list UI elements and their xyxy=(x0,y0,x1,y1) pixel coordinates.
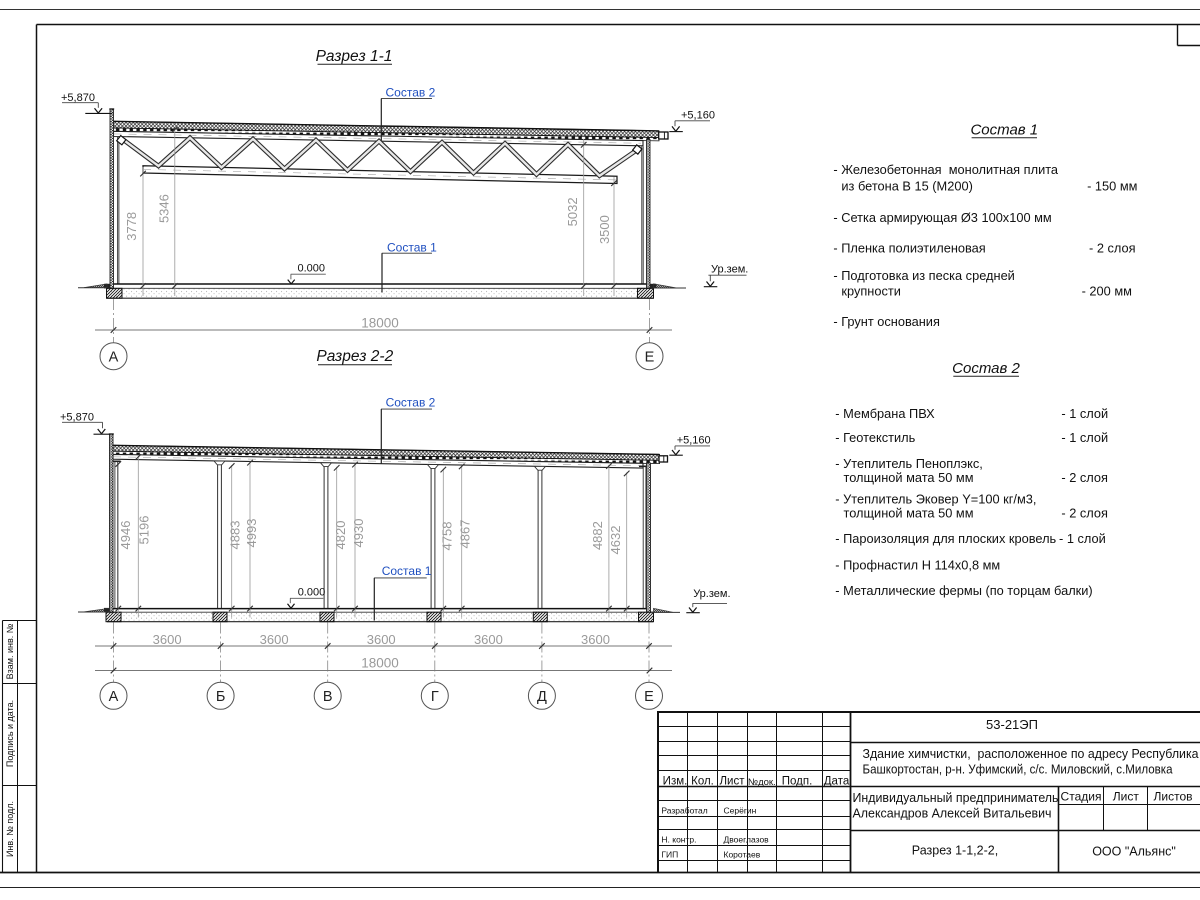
svg-text:Индивидуальный предприниматель: Индивидуальный предприниматель xyxy=(853,791,1059,805)
svg-text:Ур.зем.: Ур.зем. xyxy=(693,588,730,600)
svg-text:ГИП: ГИП xyxy=(661,850,678,860)
svg-text:Александров Алексей Витальевич: Александров Алексей Витальевич xyxy=(853,806,1052,820)
svg-text:4993: 4993 xyxy=(244,519,259,548)
svg-text:- 2 слоя: - 2 слоя xyxy=(1061,470,1108,485)
svg-text:4882: 4882 xyxy=(590,521,605,550)
svg-text:Коротаев: Коротаев xyxy=(724,850,761,860)
svg-text:5196: 5196 xyxy=(136,516,151,545)
svg-text:Разработал: Разработал xyxy=(661,806,707,816)
svg-text:- Профнастил Н 114х0,8 мм: - Профнастил Н 114х0,8 мм xyxy=(835,557,1000,572)
svg-text:Д: Д xyxy=(537,689,547,705)
svg-text:Здание химчистки, расположенн: Здание химчистки, расположенное по адрес… xyxy=(863,746,1200,761)
svg-text:0.000: 0.000 xyxy=(298,263,326,275)
svg-text:- Геотекстиль: - Геотекстиль xyxy=(835,430,915,445)
svg-text:- Утеплитель Пеноплэкс,: - Утеплитель Пеноплэкс, xyxy=(835,456,983,471)
svg-text:3500: 3500 xyxy=(597,215,612,244)
svg-text:Инв. № подл.: Инв. № подл. xyxy=(5,801,15,857)
svg-text:- 1 слой: - 1 слой xyxy=(1059,531,1106,546)
svg-text:0.000: 0.000 xyxy=(298,586,326,598)
svg-text:- Пароизоляция для плоских кро: - Пароизоляция для плоских кровель xyxy=(835,531,1056,546)
svg-text:Г: Г xyxy=(431,689,439,705)
svg-text:Листов: Листов xyxy=(1154,790,1193,804)
svg-text:А: А xyxy=(109,689,119,705)
svg-text:Н. контр.: Н. контр. xyxy=(661,835,696,845)
svg-text:Подп.: Подп. xyxy=(782,775,813,787)
svg-text:Изм.: Изм. xyxy=(663,775,688,787)
svg-text:Состав 1: Состав 1 xyxy=(387,240,437,254)
svg-text:Разрез 1-1,2-2,: Разрез 1-1,2-2, xyxy=(912,844,998,858)
svg-text:4930: 4930 xyxy=(351,519,366,548)
svg-text:- Железобетонная монолитная п: - Железобетонная монолитная плита xyxy=(833,162,1059,177)
svg-text:ООО "Альянс": ООО "Альянс" xyxy=(1092,845,1176,859)
svg-text:Двоеглазов: Двоеглазов xyxy=(724,835,770,845)
svg-text:- Пленка полиэтиленовая: - Пленка полиэтиленовая xyxy=(833,241,985,256)
svg-text:Состав 2: Состав 2 xyxy=(386,396,436,410)
svg-text:- Грунт основания: - Грунт основания xyxy=(833,314,940,329)
svg-text:Серёгин: Серёгин xyxy=(724,806,757,816)
svg-text:4867: 4867 xyxy=(457,520,472,549)
svg-text:3600: 3600 xyxy=(367,632,396,647)
svg-text:3600: 3600 xyxy=(474,632,503,647)
svg-text:Стадия: Стадия xyxy=(1061,790,1102,804)
svg-text:+5,870: +5,870 xyxy=(61,92,95,104)
svg-text:+5,160: +5,160 xyxy=(681,110,715,122)
svg-text:4820: 4820 xyxy=(333,521,348,550)
svg-text:Е: Е xyxy=(644,689,654,705)
svg-text:- 150 мм: - 150 мм xyxy=(1087,179,1137,194)
svg-text:крупности: крупности xyxy=(841,284,901,299)
svg-text:Разрез 2-2: Разрез 2-2 xyxy=(316,348,393,365)
svg-text:Лист: Лист xyxy=(1113,790,1140,804)
svg-text:Состав 1: Состав 1 xyxy=(970,122,1038,139)
svg-text:+5,160: +5,160 xyxy=(677,434,711,446)
svg-text:- 2 слоя: - 2 слоя xyxy=(1061,506,1108,521)
svg-text:4883: 4883 xyxy=(227,521,242,550)
svg-text:Башкортостан, р-н. Уфимский, с: Башкортостан, р-н. Уфимский, с/с. Миловс… xyxy=(863,761,1174,776)
svg-text:3600: 3600 xyxy=(260,632,289,647)
svg-text:из бетона В 15 (М200): из бетона В 15 (М200) xyxy=(841,179,972,194)
svg-text:- 1 слой: - 1 слой xyxy=(1061,430,1108,445)
svg-text:Состав 2: Состав 2 xyxy=(386,86,436,100)
svg-text:Взам. инв. №: Взам. инв. № xyxy=(5,623,15,679)
svg-text:3600: 3600 xyxy=(153,632,182,647)
svg-text:- 1 слой: - 1 слой xyxy=(1061,406,1108,421)
svg-text:5346: 5346 xyxy=(157,194,172,223)
svg-text:4946: 4946 xyxy=(118,521,133,550)
svg-text:Лист: Лист xyxy=(720,775,746,787)
svg-text:- Сетка армирующая Ø3 100х100: - Сетка армирующая Ø3 100х100 мм xyxy=(833,210,1051,225)
svg-text:4758: 4758 xyxy=(440,522,455,551)
svg-text:Состав 2: Состав 2 xyxy=(952,360,1020,377)
svg-text:Подпись и дата.: Подпись и дата. xyxy=(5,700,15,767)
svg-text:18000: 18000 xyxy=(361,656,399,671)
svg-text:- Подготовка из песка средней: - Подготовка из песка средней xyxy=(833,268,1014,283)
svg-text:+5,870: +5,870 xyxy=(60,411,94,423)
svg-text:В: В xyxy=(323,689,333,705)
svg-text:4632: 4632 xyxy=(608,526,623,555)
svg-text:толщиной мата 50 мм: толщиной мата 50 мм xyxy=(844,506,974,521)
svg-text:- 200 мм: - 200 мм xyxy=(1082,284,1132,299)
svg-text:Е: Е xyxy=(645,349,655,365)
svg-text:Разрез 1-1: Разрез 1-1 xyxy=(316,48,393,65)
svg-text:- Мембрана ПВХ: - Мембрана ПВХ xyxy=(835,406,935,421)
svg-text:3778: 3778 xyxy=(124,212,139,241)
svg-text:№док.: №док. xyxy=(748,777,776,788)
svg-text:Ур.зем.: Ур.зем. xyxy=(711,264,748,276)
svg-text:3600: 3600 xyxy=(581,632,610,647)
svg-text:- Утеплитель Эковер Y=100 кг/м: - Утеплитель Эковер Y=100 кг/м3, xyxy=(835,491,1036,506)
svg-text:Дата: Дата xyxy=(824,775,850,787)
svg-text:Кол.: Кол. xyxy=(691,775,714,787)
svg-text:- 2 слоя: - 2 слоя xyxy=(1089,241,1136,256)
svg-text:А: А xyxy=(109,349,119,365)
svg-text:5032: 5032 xyxy=(565,197,580,226)
svg-text:толщиной мата 50 мм: толщиной мата 50 мм xyxy=(844,470,974,485)
svg-text:53-21ЭП: 53-21ЭП xyxy=(986,717,1038,732)
svg-text:18000: 18000 xyxy=(361,315,399,330)
svg-text:Б: Б xyxy=(216,689,226,705)
svg-text:- Металлические фермы (по торц: - Металлические фермы (по торцам балки) xyxy=(835,583,1092,598)
svg-text:Состав 1: Состав 1 xyxy=(382,564,432,578)
